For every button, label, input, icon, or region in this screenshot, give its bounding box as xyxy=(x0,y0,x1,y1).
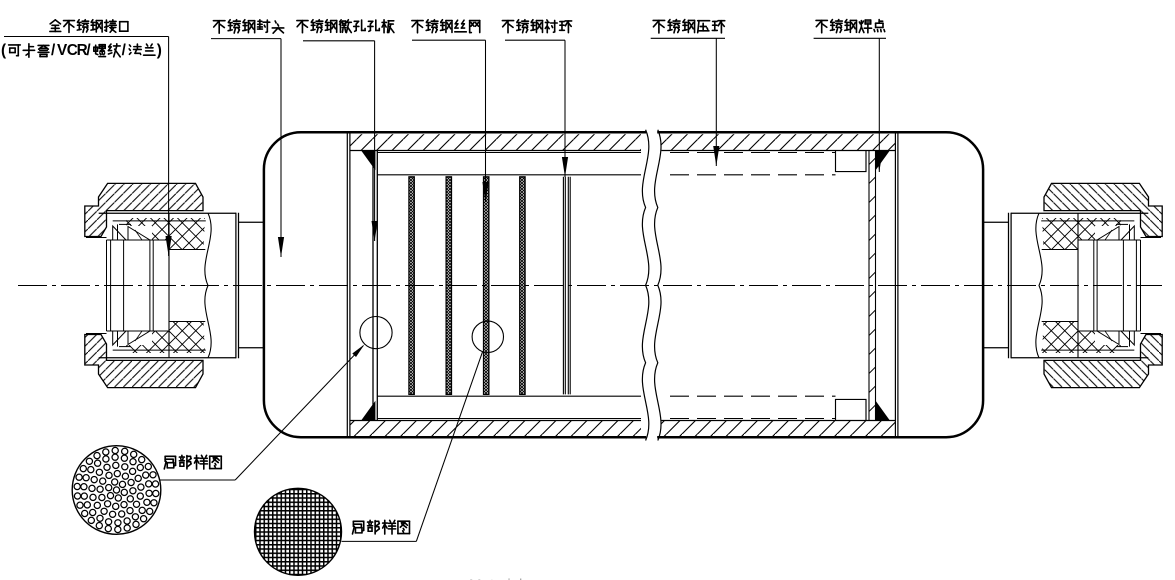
svg-text:/: / xyxy=(86,42,91,59)
svg-text:Material: Material xyxy=(469,577,522,580)
svg-text:(: ( xyxy=(1,42,7,59)
svg-text:/: / xyxy=(122,42,127,59)
svg-text:): ) xyxy=(157,42,162,59)
